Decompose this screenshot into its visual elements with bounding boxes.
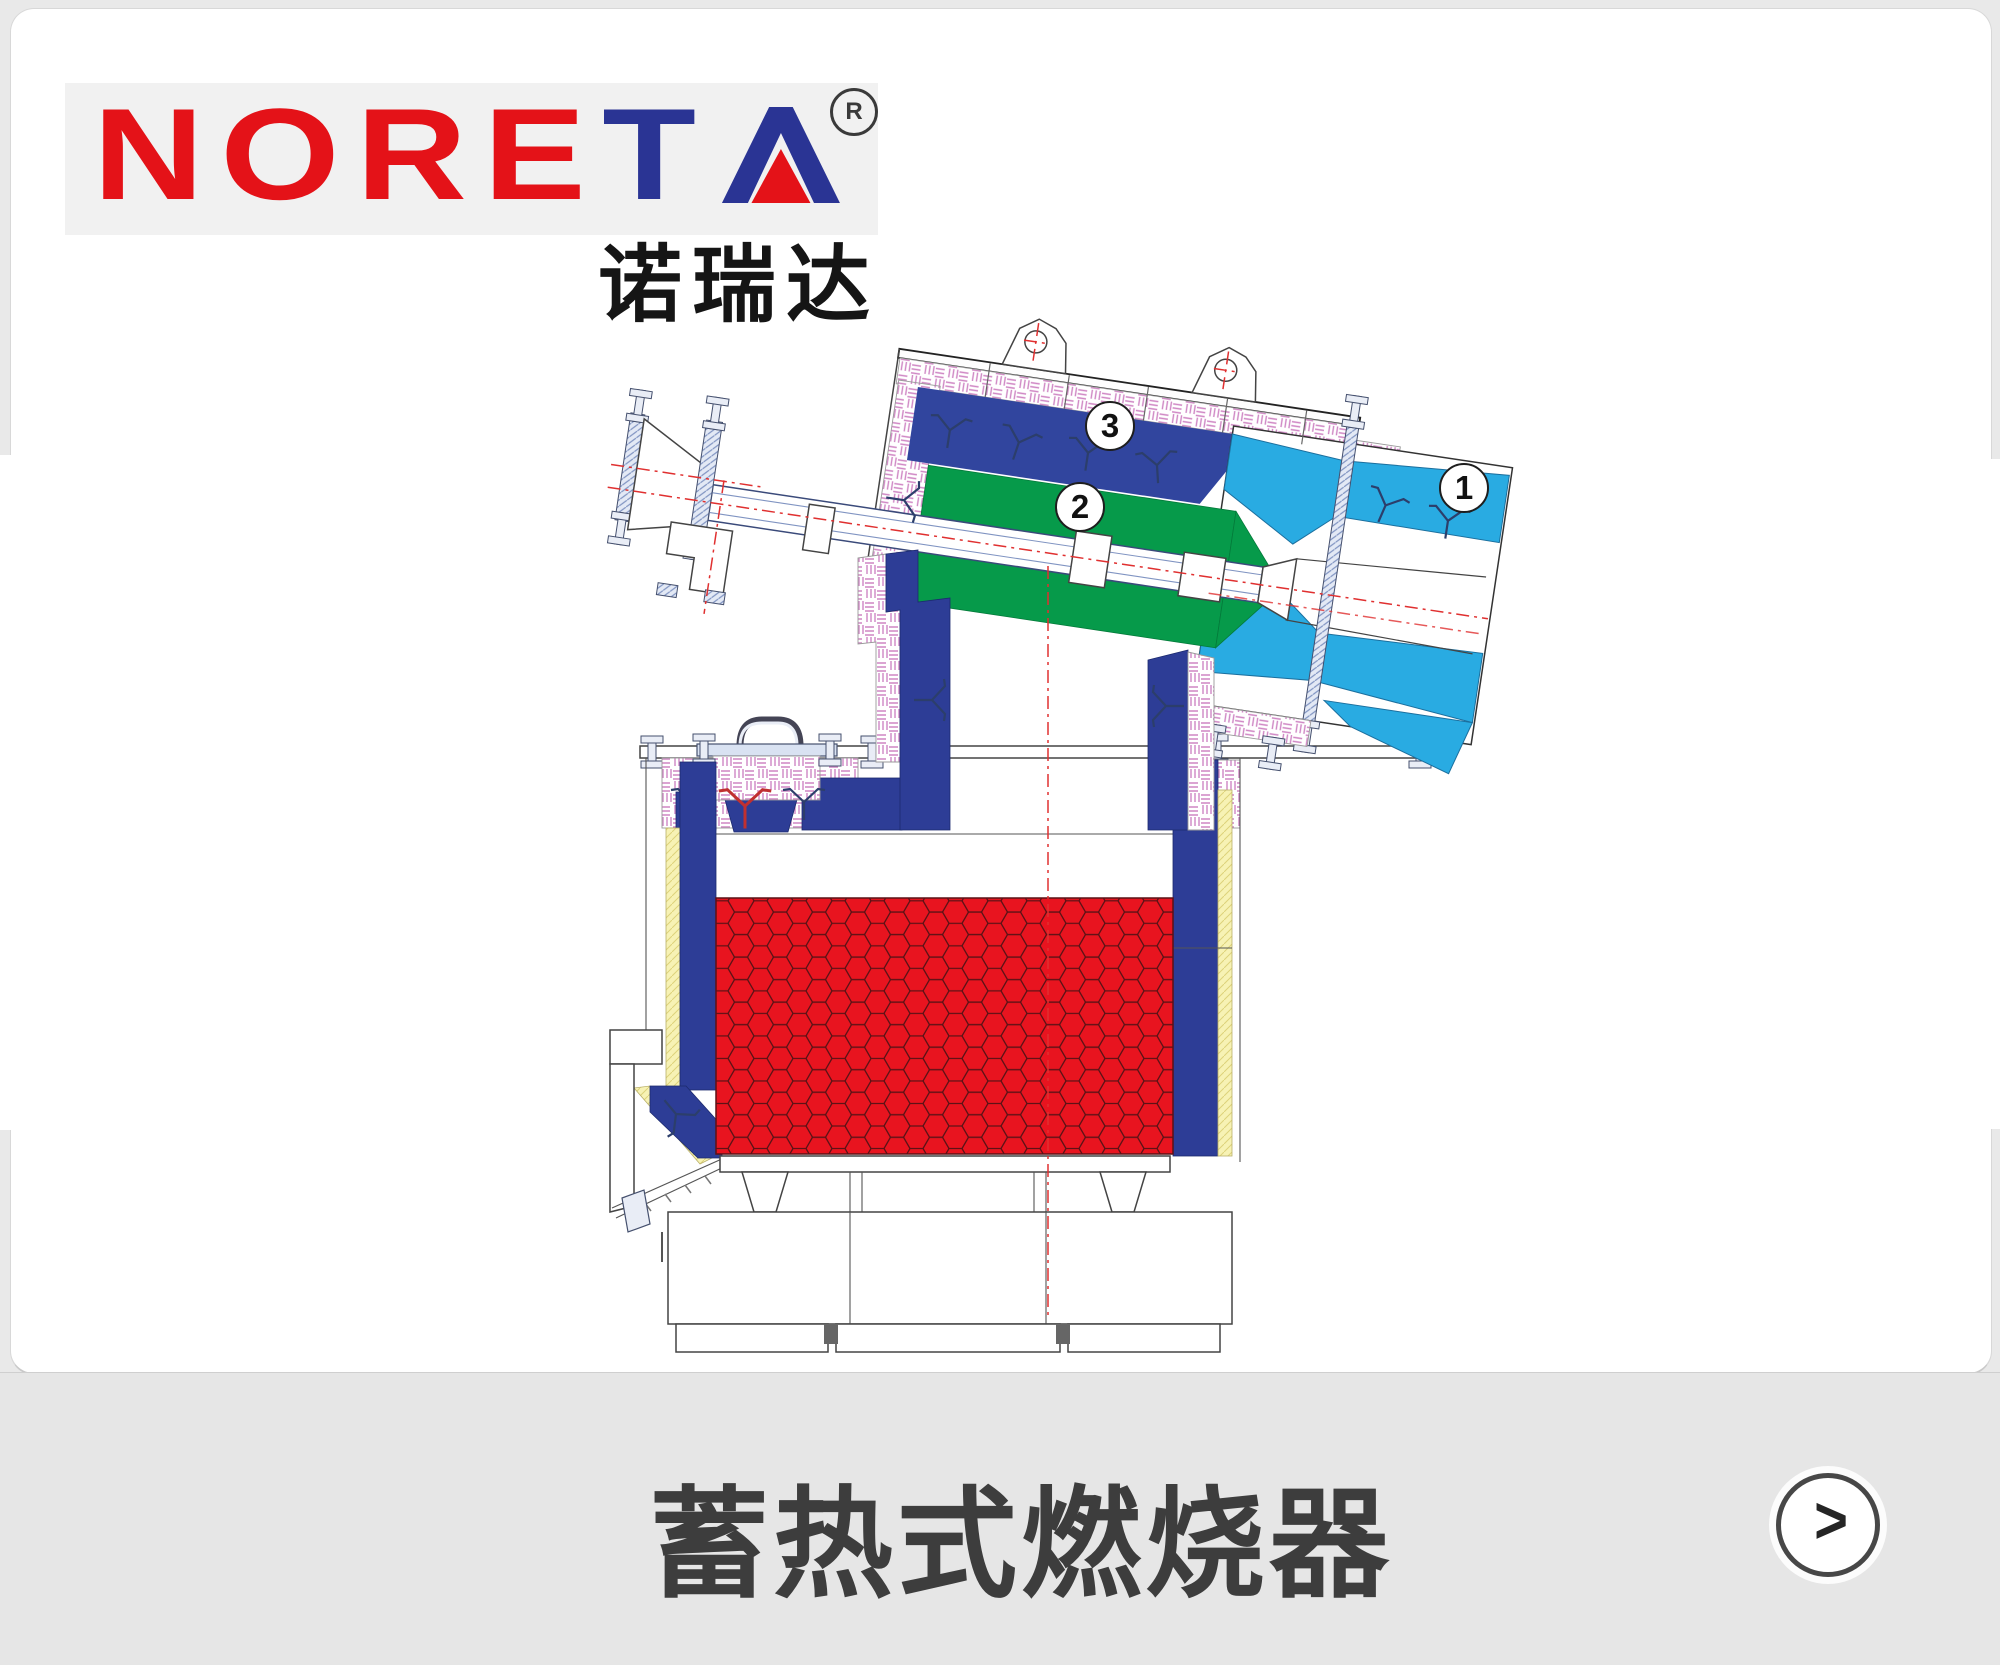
- callout-2: 2: [1055, 482, 1105, 532]
- product-title: 蓄热式燃烧器: [21, 1447, 2000, 1621]
- next-arrow-button[interactable]: >: [1776, 1473, 1880, 1577]
- burner-cross-section-diagram: [470, 250, 1560, 1370]
- right-edge-cover: [1989, 459, 2000, 1129]
- wordmark-blue-letter-t: T: [602, 105, 712, 203]
- lifting-lug: [1192, 343, 1263, 402]
- furnace-body: [610, 720, 1448, 1352]
- registered-trademark-icon: R: [830, 88, 878, 136]
- logo-letter-a-triangle-icon: [720, 107, 843, 203]
- regenerator-honeycomb: [716, 898, 1173, 1154]
- brand-wordmark: NORET: [93, 105, 842, 203]
- callout-3: 3: [1085, 401, 1135, 451]
- wordmark-red-letters: NORE: [93, 105, 602, 203]
- chevron-right-icon: >: [1814, 1488, 1848, 1555]
- burner-assembly: [581, 260, 1524, 798]
- brand-logo: NORET R: [65, 83, 878, 235]
- left-edge-cover: [0, 455, 11, 1130]
- screen: NORET R 诺瑞达: [0, 0, 2000, 1665]
- footer-bar: 蓄热式燃烧器: [0, 1372, 2000, 1665]
- lifting-lug: [1002, 315, 1073, 374]
- callout-1: 1: [1439, 463, 1489, 513]
- furnace-base: [668, 1212, 1232, 1352]
